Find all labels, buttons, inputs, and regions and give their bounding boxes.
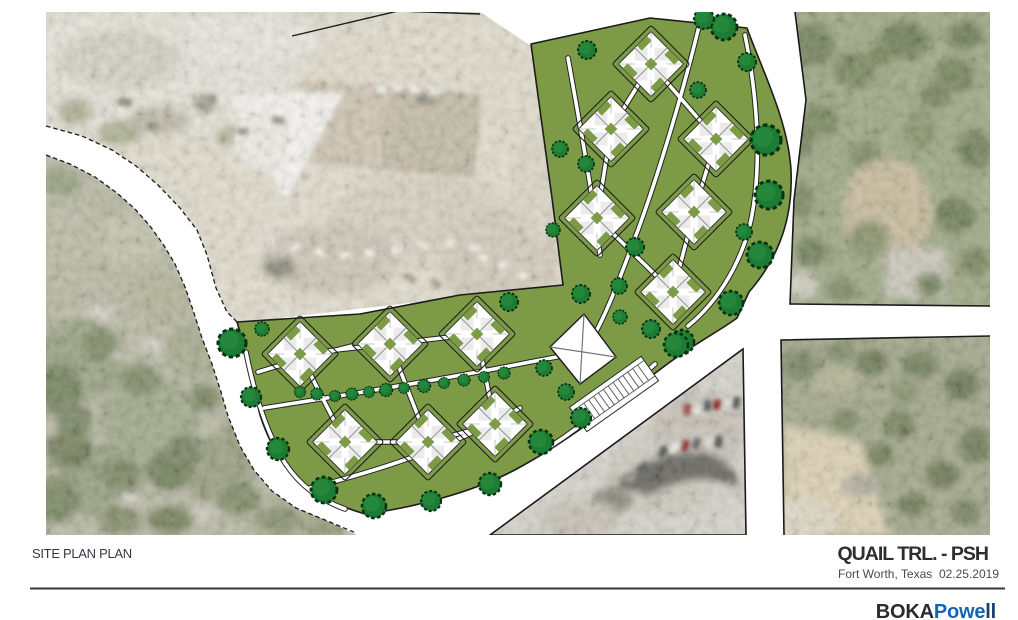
svg-text:SITE PLAN PLAN: SITE PLAN PLAN <box>32 546 132 561</box>
svg-text:QUAIL TRL. - PSH: QUAIL TRL. - PSH <box>838 543 988 565</box>
svg-text:Fort Worth, Texas 02.25.2019: Fort Worth, Texas 02.25.2019 <box>838 567 999 581</box>
svg-text:BOKAPowell: BOKAPowell <box>876 601 996 620</box>
